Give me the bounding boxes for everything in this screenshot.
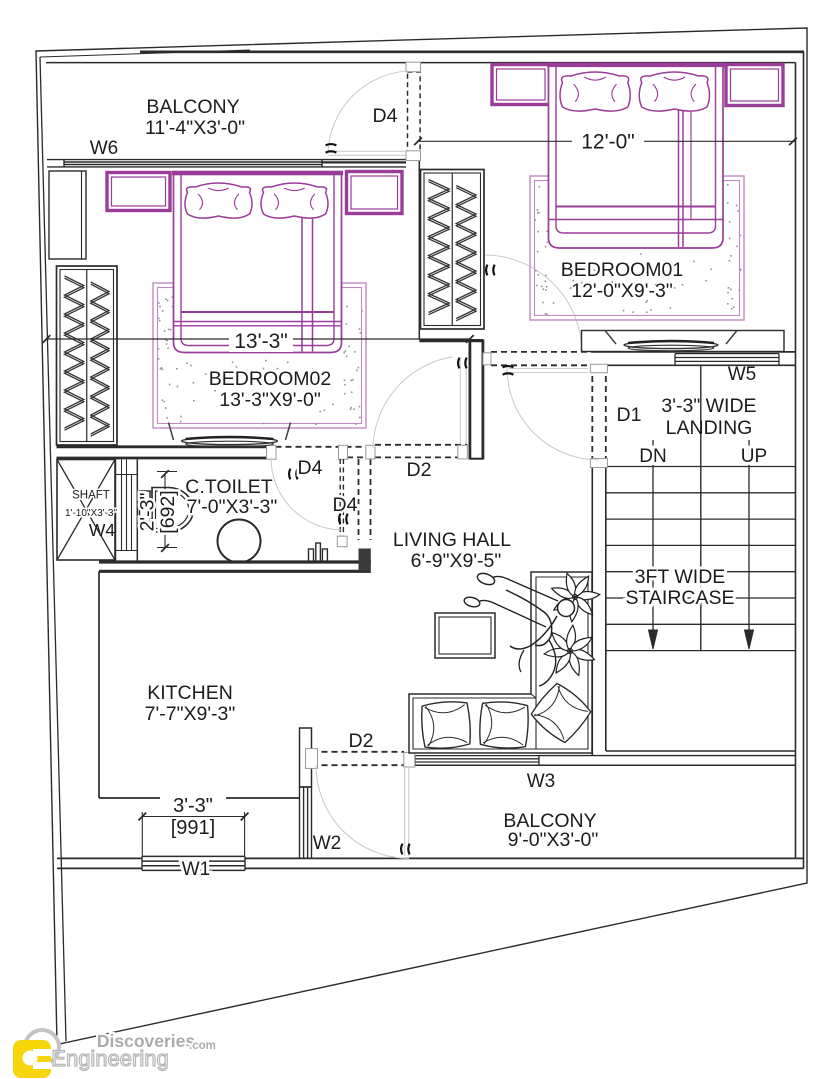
svg-text:6'-9"X9'-5": 6'-9"X9'-5" <box>411 550 502 572</box>
svg-text:3FT WIDE: 3FT WIDE <box>635 566 726 588</box>
svg-text:W5: W5 <box>728 364 757 385</box>
svg-text:13'-3": 13'-3" <box>234 330 288 353</box>
svg-text:.com: .com <box>189 1040 216 1052</box>
svg-text:DN: DN <box>639 446 666 467</box>
svg-text:BEDROOM02: BEDROOM02 <box>209 368 331 390</box>
svg-text:D1: D1 <box>617 404 642 426</box>
svg-text:BALCONY: BALCONY <box>146 96 239 118</box>
svg-text:W2: W2 <box>313 833 342 854</box>
svg-text:11'-4"X3'-0": 11'-4"X3'-0" <box>145 117 245 139</box>
svg-text:UP: UP <box>741 446 767 467</box>
svg-text:W4: W4 <box>89 520 116 540</box>
svg-text:2'-3": 2'-3" <box>137 493 159 532</box>
svg-text:KITCHEN: KITCHEN <box>147 682 233 704</box>
svg-text:W3: W3 <box>527 771 556 792</box>
svg-text:D4: D4 <box>373 105 398 127</box>
svg-text:3'-3": 3'-3" <box>173 795 213 817</box>
svg-text:C.TOILET: C.TOILET <box>185 476 272 498</box>
svg-text:D4: D4 <box>298 457 323 479</box>
svg-text:D2: D2 <box>407 459 432 481</box>
svg-text:12'-0": 12'-0" <box>581 131 635 154</box>
svg-text:W1: W1 <box>182 859 211 880</box>
svg-text:[991]: [991] <box>171 817 215 839</box>
svg-text:W6: W6 <box>90 138 119 159</box>
svg-text:7'-7"X9'-3": 7'-7"X9'-3" <box>145 703 236 725</box>
svg-text:STAIRCASE: STAIRCASE <box>625 587 734 609</box>
svg-text:1'-10"X3'-3": 1'-10"X3'-3" <box>65 508 118 519</box>
svg-text:SHAFT: SHAFT <box>72 490 110 502</box>
svg-text:9'-0"X3'-0": 9'-0"X3'-0" <box>508 829 599 851</box>
svg-text:LANDING: LANDING <box>666 417 753 439</box>
svg-text:13'-3"X9'-0": 13'-3"X9'-0" <box>219 389 321 411</box>
svg-text:3'-3" WIDE: 3'-3" WIDE <box>661 395 756 417</box>
svg-text:BEDROOM01: BEDROOM01 <box>561 259 683 281</box>
svg-text:[692]: [692] <box>157 490 179 533</box>
svg-text:Engineering: Engineering <box>51 1046 168 1071</box>
svg-text:LIVING HALL: LIVING HALL <box>393 529 511 551</box>
svg-text:D2: D2 <box>349 730 374 752</box>
svg-text:12'-0"X9'-3": 12'-0"X9'-3" <box>571 280 673 302</box>
svg-text:7'-0"X3'-3": 7'-0"X3'-3" <box>187 496 278 518</box>
svg-text:D4: D4 <box>333 494 358 516</box>
